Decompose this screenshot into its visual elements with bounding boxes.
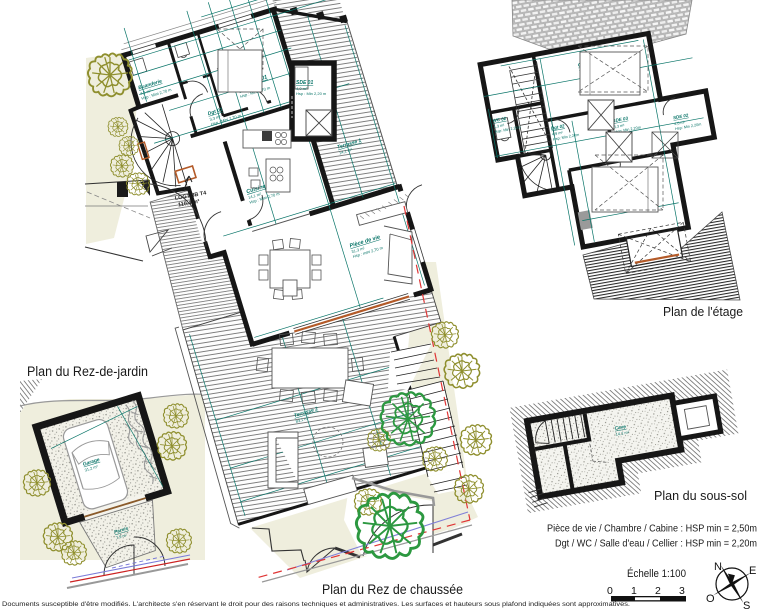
svg-text:Plan du sous-sol: Plan du sous-sol xyxy=(654,488,747,503)
svg-text:Pièce de vie / Chambre / Cabin: Pièce de vie / Chambre / Cabine : HSP mi… xyxy=(547,524,757,535)
svg-text:2: 2 xyxy=(655,585,661,597)
svg-text:Échelle 1:100: Échelle 1:100 xyxy=(627,567,686,580)
svg-text:O: O xyxy=(706,593,715,605)
svg-text:1: 1 xyxy=(631,585,637,597)
svg-text:E: E xyxy=(749,565,756,577)
svg-text:3: 3 xyxy=(679,585,685,597)
svg-text:Plan de l'étage: Plan de l'étage xyxy=(663,304,743,319)
svg-text:Plan du Rez-de-jardin: Plan du Rez-de-jardin xyxy=(27,364,148,379)
svg-text:Hsp : Min 2,20 m: Hsp : Min 2,20 m xyxy=(296,91,327,96)
svg-text:Documents susceptible d'être m: Documents susceptible d'être modifiés. L… xyxy=(2,601,630,608)
svg-text:0: 0 xyxy=(607,585,613,597)
svg-text:Plan du Rez de chaussée: Plan du Rez de chaussée xyxy=(322,581,463,597)
svg-text:S: S xyxy=(743,600,750,609)
svg-text:Dgt / WC / Salle d'eau / Celli: Dgt / WC / Salle d'eau / Cellier : HSP m… xyxy=(555,539,757,550)
svg-text:N: N xyxy=(714,561,722,573)
